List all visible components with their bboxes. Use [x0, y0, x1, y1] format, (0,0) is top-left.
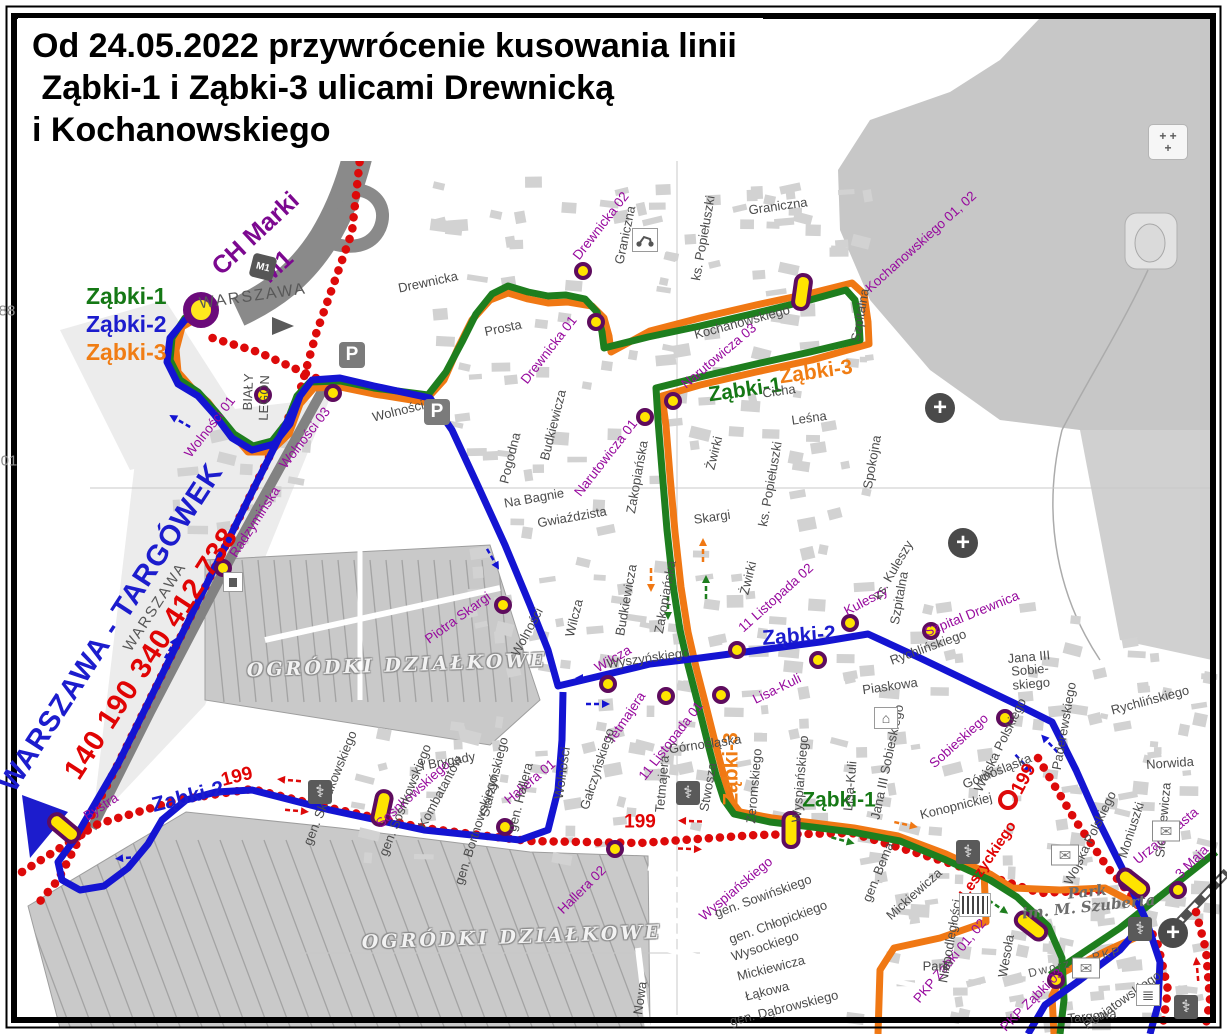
building — [884, 711, 898, 722]
building — [690, 821, 702, 831]
building — [533, 464, 544, 473]
building — [797, 686, 810, 700]
building — [1047, 843, 1064, 851]
building — [565, 280, 583, 292]
building — [603, 762, 623, 778]
building — [351, 801, 366, 809]
building — [617, 582, 633, 595]
building — [1042, 656, 1060, 667]
building — [678, 720, 696, 727]
building — [445, 222, 463, 235]
bus-stop-marker — [811, 653, 825, 667]
building — [1006, 825, 1015, 834]
building — [659, 277, 669, 286]
building — [599, 654, 621, 669]
building — [1028, 669, 1038, 678]
building — [761, 705, 769, 715]
building — [433, 181, 446, 190]
direction-arrow — [831, 837, 854, 845]
building — [769, 616, 787, 625]
building — [724, 707, 744, 717]
building — [1098, 985, 1110, 991]
building — [861, 488, 871, 497]
building — [889, 731, 907, 745]
building — [866, 811, 883, 820]
building — [1019, 602, 1036, 613]
building — [611, 595, 630, 605]
building — [410, 767, 418, 777]
direction-arrow — [989, 900, 1009, 914]
building — [745, 591, 755, 599]
building — [754, 733, 767, 742]
building — [930, 687, 948, 696]
building — [539, 576, 556, 584]
bus-stop-marker — [608, 842, 622, 856]
building — [467, 448, 487, 456]
building — [783, 660, 803, 673]
building — [1115, 982, 1135, 991]
bus-stop-bay-marker — [792, 274, 812, 310]
building — [216, 521, 231, 532]
bus-stop-marker — [843, 616, 857, 630]
building — [469, 374, 482, 380]
building — [925, 898, 939, 905]
building — [378, 762, 388, 771]
building — [492, 740, 501, 752]
building — [854, 582, 875, 592]
building — [435, 751, 447, 760]
building — [575, 557, 590, 568]
building — [935, 601, 952, 613]
building — [684, 234, 696, 245]
building — [581, 741, 596, 754]
building — [661, 746, 682, 756]
legend-item-ząbki-1: Ząbki-1 — [86, 282, 167, 310]
building — [514, 210, 526, 224]
building — [586, 626, 603, 635]
title-line-3: i Kochanowskiego — [32, 110, 737, 152]
building — [563, 797, 582, 810]
building — [706, 195, 721, 206]
building — [879, 688, 900, 699]
building — [953, 937, 963, 947]
building — [859, 665, 874, 677]
building — [660, 754, 674, 765]
building — [713, 633, 727, 644]
building — [1191, 702, 1207, 710]
building — [818, 544, 829, 555]
building — [642, 215, 663, 226]
building — [1154, 747, 1162, 754]
title-line-2: Ząbki-1 i Ząbki-3 ulicami Drewnicką — [32, 68, 737, 110]
bus-stop-marker — [659, 689, 673, 703]
building — [504, 374, 518, 385]
direction-arrow — [1041, 735, 1057, 753]
building — [789, 489, 806, 500]
building — [778, 262, 800, 276]
building — [596, 721, 607, 731]
bus-stop-marker — [666, 394, 680, 408]
building — [865, 354, 874, 361]
building — [414, 854, 434, 860]
building — [821, 420, 837, 432]
bus-stop-bay-marker — [46, 811, 82, 844]
building — [797, 516, 817, 532]
bus-stop-marker — [589, 315, 603, 329]
building — [561, 202, 576, 214]
building — [1192, 712, 1208, 727]
building — [436, 336, 455, 347]
building — [601, 361, 613, 372]
building — [472, 566, 483, 578]
building — [931, 958, 951, 968]
building — [1090, 991, 1104, 1001]
building — [968, 788, 978, 799]
building — [636, 234, 652, 248]
building — [1181, 830, 1192, 840]
building — [690, 440, 700, 450]
building — [173, 499, 181, 511]
building — [647, 705, 655, 717]
building — [1008, 866, 1016, 879]
building — [982, 948, 997, 955]
direction-arrow — [699, 538, 707, 562]
bus-stop-marker — [216, 561, 230, 575]
building — [557, 312, 571, 323]
building — [1070, 615, 1081, 624]
building — [845, 358, 859, 368]
building — [1048, 705, 1066, 718]
building — [455, 413, 471, 423]
direction-arrow — [647, 568, 655, 592]
building — [911, 744, 921, 750]
building — [922, 604, 934, 615]
building — [458, 362, 471, 371]
building — [789, 207, 802, 215]
bus-stop-marker — [924, 624, 938, 638]
building — [616, 796, 626, 808]
forest-area-south — [1080, 430, 1212, 660]
building — [593, 499, 606, 512]
building — [1192, 850, 1202, 860]
building — [703, 328, 720, 341]
building — [703, 599, 720, 611]
building — [1063, 642, 1083, 657]
building — [895, 893, 911, 907]
building — [977, 748, 994, 762]
bus-stop-marker — [496, 598, 510, 612]
title-line-1: Od 24.05.2022 przywrócenie kusowania lin… — [32, 26, 737, 68]
direction-arrow — [1193, 957, 1201, 981]
building — [942, 761, 963, 776]
building — [567, 457, 587, 463]
title-block: Od 24.05.2022 przywrócenie kusowania lin… — [18, 18, 763, 161]
bus-stop-marker — [730, 643, 744, 657]
legend-item-ząbki-2: Ząbki-2 — [86, 310, 167, 338]
building — [1182, 770, 1191, 776]
building — [762, 429, 779, 439]
building — [677, 761, 694, 775]
building — [669, 764, 680, 775]
building — [830, 737, 849, 748]
building — [1150, 741, 1158, 747]
building — [551, 431, 569, 445]
building — [1187, 994, 1204, 1004]
building — [613, 816, 627, 825]
building — [887, 783, 897, 796]
building — [838, 189, 855, 195]
building — [757, 628, 768, 640]
building — [800, 546, 816, 561]
building — [615, 187, 630, 196]
building — [1150, 653, 1160, 663]
building — [240, 464, 253, 476]
building — [607, 428, 621, 440]
building — [560, 660, 571, 669]
building — [497, 450, 512, 458]
building — [1141, 802, 1155, 811]
building — [565, 826, 575, 837]
direction-arrow — [664, 596, 672, 620]
building — [555, 618, 564, 627]
building — [837, 654, 855, 663]
building — [800, 739, 813, 750]
building — [856, 747, 867, 758]
building — [693, 550, 709, 557]
building — [698, 397, 715, 406]
building — [302, 440, 311, 453]
building — [594, 574, 606, 580]
building — [840, 461, 850, 470]
building — [535, 751, 548, 757]
building — [467, 274, 488, 283]
building — [741, 400, 761, 413]
building — [626, 614, 647, 623]
building — [1180, 786, 1199, 796]
building — [649, 203, 666, 210]
building — [536, 367, 549, 378]
bus-stop-marker — [1171, 883, 1185, 897]
building — [1113, 720, 1132, 731]
building — [433, 308, 449, 321]
bus-stop-marker — [714, 688, 728, 702]
building — [655, 354, 676, 367]
building — [788, 450, 804, 465]
building — [1139, 686, 1150, 693]
building — [500, 774, 509, 783]
building — [1067, 704, 1088, 716]
building — [805, 224, 820, 236]
building — [364, 852, 373, 863]
building — [1104, 797, 1118, 810]
building — [1002, 972, 1024, 987]
building — [521, 526, 533, 539]
building — [1161, 687, 1172, 700]
building — [736, 759, 752, 767]
building — [871, 764, 890, 774]
bus-stop-marker — [256, 388, 270, 402]
building — [831, 246, 840, 252]
building — [929, 827, 943, 836]
building — [774, 217, 794, 226]
building — [628, 350, 638, 361]
map-poster: CH MarkiM1WARSZAWAWARSZAWAWARSZAWA - TAR… — [0, 0, 1227, 1034]
building — [426, 791, 443, 798]
building — [1018, 691, 1034, 702]
building — [1014, 715, 1023, 727]
building — [1092, 667, 1107, 679]
building — [1062, 875, 1080, 885]
building — [954, 653, 963, 663]
terminus-marker — [187, 296, 215, 324]
building — [1091, 908, 1105, 921]
building — [535, 319, 549, 329]
building — [523, 469, 533, 482]
direction-arrow — [277, 776, 301, 784]
building — [800, 798, 810, 807]
building — [766, 288, 787, 296]
building — [954, 996, 963, 1007]
bus-stop-marker — [998, 711, 1012, 725]
building — [636, 202, 647, 216]
building — [1003, 855, 1013, 865]
building — [843, 764, 853, 772]
bus-stop-marker — [498, 820, 512, 834]
building — [875, 871, 883, 883]
building — [525, 177, 542, 188]
building — [1092, 1022, 1111, 1030]
building — [966, 976, 986, 987]
building — [743, 779, 757, 793]
bus-stop-marker — [576, 264, 590, 278]
building — [708, 260, 721, 269]
building — [489, 210, 502, 220]
bus-stop-marker — [326, 386, 340, 400]
building — [740, 219, 754, 229]
building — [982, 766, 1003, 778]
building — [910, 904, 930, 918]
building — [510, 519, 524, 526]
building — [492, 363, 511, 372]
building — [626, 807, 636, 817]
route-legend: Ząbki-1Ząbki-2Ząbki-3 — [86, 282, 167, 366]
building — [582, 381, 592, 390]
direction-arrow — [285, 807, 309, 815]
building — [1087, 712, 1102, 726]
building — [612, 210, 629, 225]
building — [806, 435, 820, 442]
bus-stop-bay-marker — [784, 813, 799, 847]
building — [656, 286, 671, 294]
building — [596, 524, 615, 536]
building — [955, 874, 964, 884]
building — [751, 186, 763, 199]
building — [425, 811, 433, 818]
bus-stop-marker — [601, 677, 615, 691]
road-arrow — [272, 317, 294, 335]
building — [929, 873, 949, 879]
building — [793, 390, 802, 398]
building — [649, 476, 659, 485]
building — [520, 786, 537, 793]
building — [450, 721, 464, 732]
bus-stop-marker — [1049, 973, 1063, 987]
building — [1055, 818, 1068, 830]
building — [505, 236, 516, 248]
building — [808, 599, 826, 612]
building — [731, 574, 743, 582]
building — [501, 797, 511, 804]
building — [355, 773, 375, 784]
building — [810, 441, 827, 454]
building — [752, 270, 765, 280]
building — [876, 796, 892, 807]
building — [799, 719, 809, 729]
bus-stop-marker — [638, 410, 652, 424]
building — [656, 769, 667, 782]
building — [732, 204, 747, 213]
building — [607, 725, 625, 739]
building — [1128, 651, 1146, 659]
building — [1016, 944, 1030, 958]
building — [763, 194, 776, 206]
building — [727, 595, 744, 608]
building — [1132, 781, 1149, 795]
legend-item-ząbki-3: Ząbki-3 — [86, 338, 167, 366]
building — [655, 184, 670, 195]
building — [953, 987, 968, 995]
building — [530, 764, 548, 775]
building — [1178, 724, 1190, 737]
building — [188, 526, 209, 535]
building — [600, 200, 619, 209]
building — [1079, 856, 1093, 863]
building — [742, 690, 762, 698]
background-zones — [0, 18, 1212, 1032]
building — [649, 620, 663, 632]
building — [788, 728, 800, 740]
direction-arrow — [1015, 755, 1031, 773]
building — [1092, 897, 1108, 908]
building — [729, 426, 744, 437]
building — [827, 507, 843, 520]
building — [392, 808, 408, 814]
building — [689, 426, 712, 442]
direction-arrow — [678, 845, 702, 853]
